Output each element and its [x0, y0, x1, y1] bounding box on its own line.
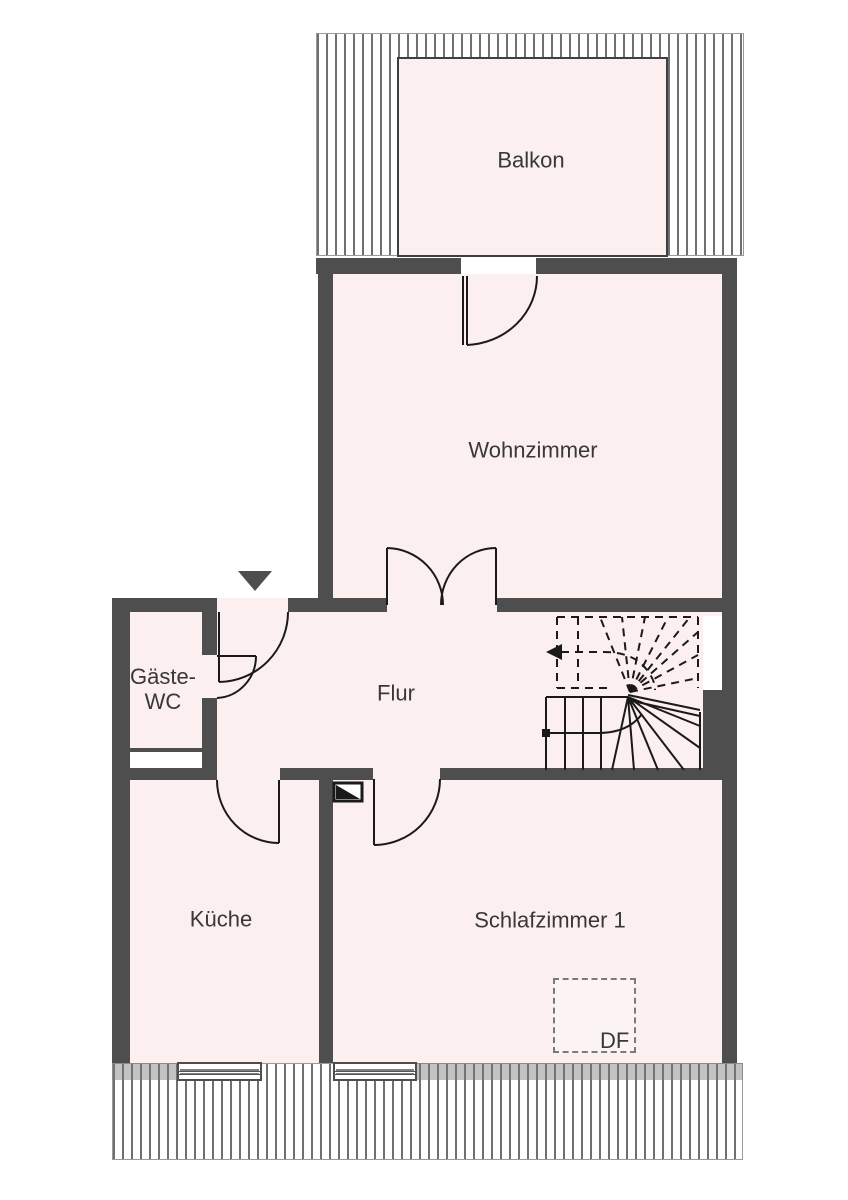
knee-wall-band	[112, 1063, 177, 1080]
wohnzimmer-floor	[333, 274, 722, 598]
room-label-wohnzimmer: Wohnzimmer	[468, 438, 597, 463]
window-symbol	[130, 748, 202, 768]
knee-wall-band	[417, 1063, 743, 1080]
df-label: DF	[600, 1028, 629, 1054]
room-label-kueche: Küche	[190, 907, 252, 932]
entrance-arrow-icon	[238, 571, 272, 591]
room-label-gaeste-wc: Gäste- WC	[130, 664, 196, 714]
room-label-flur: Flur	[377, 681, 415, 706]
wall-segment	[703, 690, 722, 780]
wall-segment	[316, 258, 461, 274]
wall-segment	[497, 598, 722, 612]
wall-segment	[536, 258, 737, 274]
gaeste-wc-line1: Gäste-	[130, 664, 196, 689]
wall-segment	[112, 598, 130, 1063]
wall-segment	[333, 598, 387, 612]
wall-segment	[202, 698, 217, 768]
floor-plan: Balkon Wohnzimmer Gäste- WC Flur Küche S…	[0, 0, 848, 1200]
wall-segment	[280, 768, 373, 780]
room-label-balkon: Balkon	[497, 148, 564, 173]
window-symbol	[177, 1062, 262, 1081]
wall-segment	[318, 258, 333, 612]
wall-segment	[202, 612, 217, 655]
wall-segment	[319, 780, 333, 1063]
window-symbol	[333, 1062, 417, 1081]
wall-segment	[722, 258, 737, 1063]
wall-segment	[112, 768, 217, 780]
wall-segment	[440, 768, 722, 780]
stairwell-niche	[703, 616, 722, 690]
room-label-schlafzimmer1: Schlafzimmer 1	[474, 908, 626, 933]
wall-segment	[288, 598, 318, 612]
window-glazing	[335, 1071, 415, 1075]
window-glazing	[179, 1071, 260, 1075]
gaeste-wc-line2: WC	[145, 689, 182, 714]
